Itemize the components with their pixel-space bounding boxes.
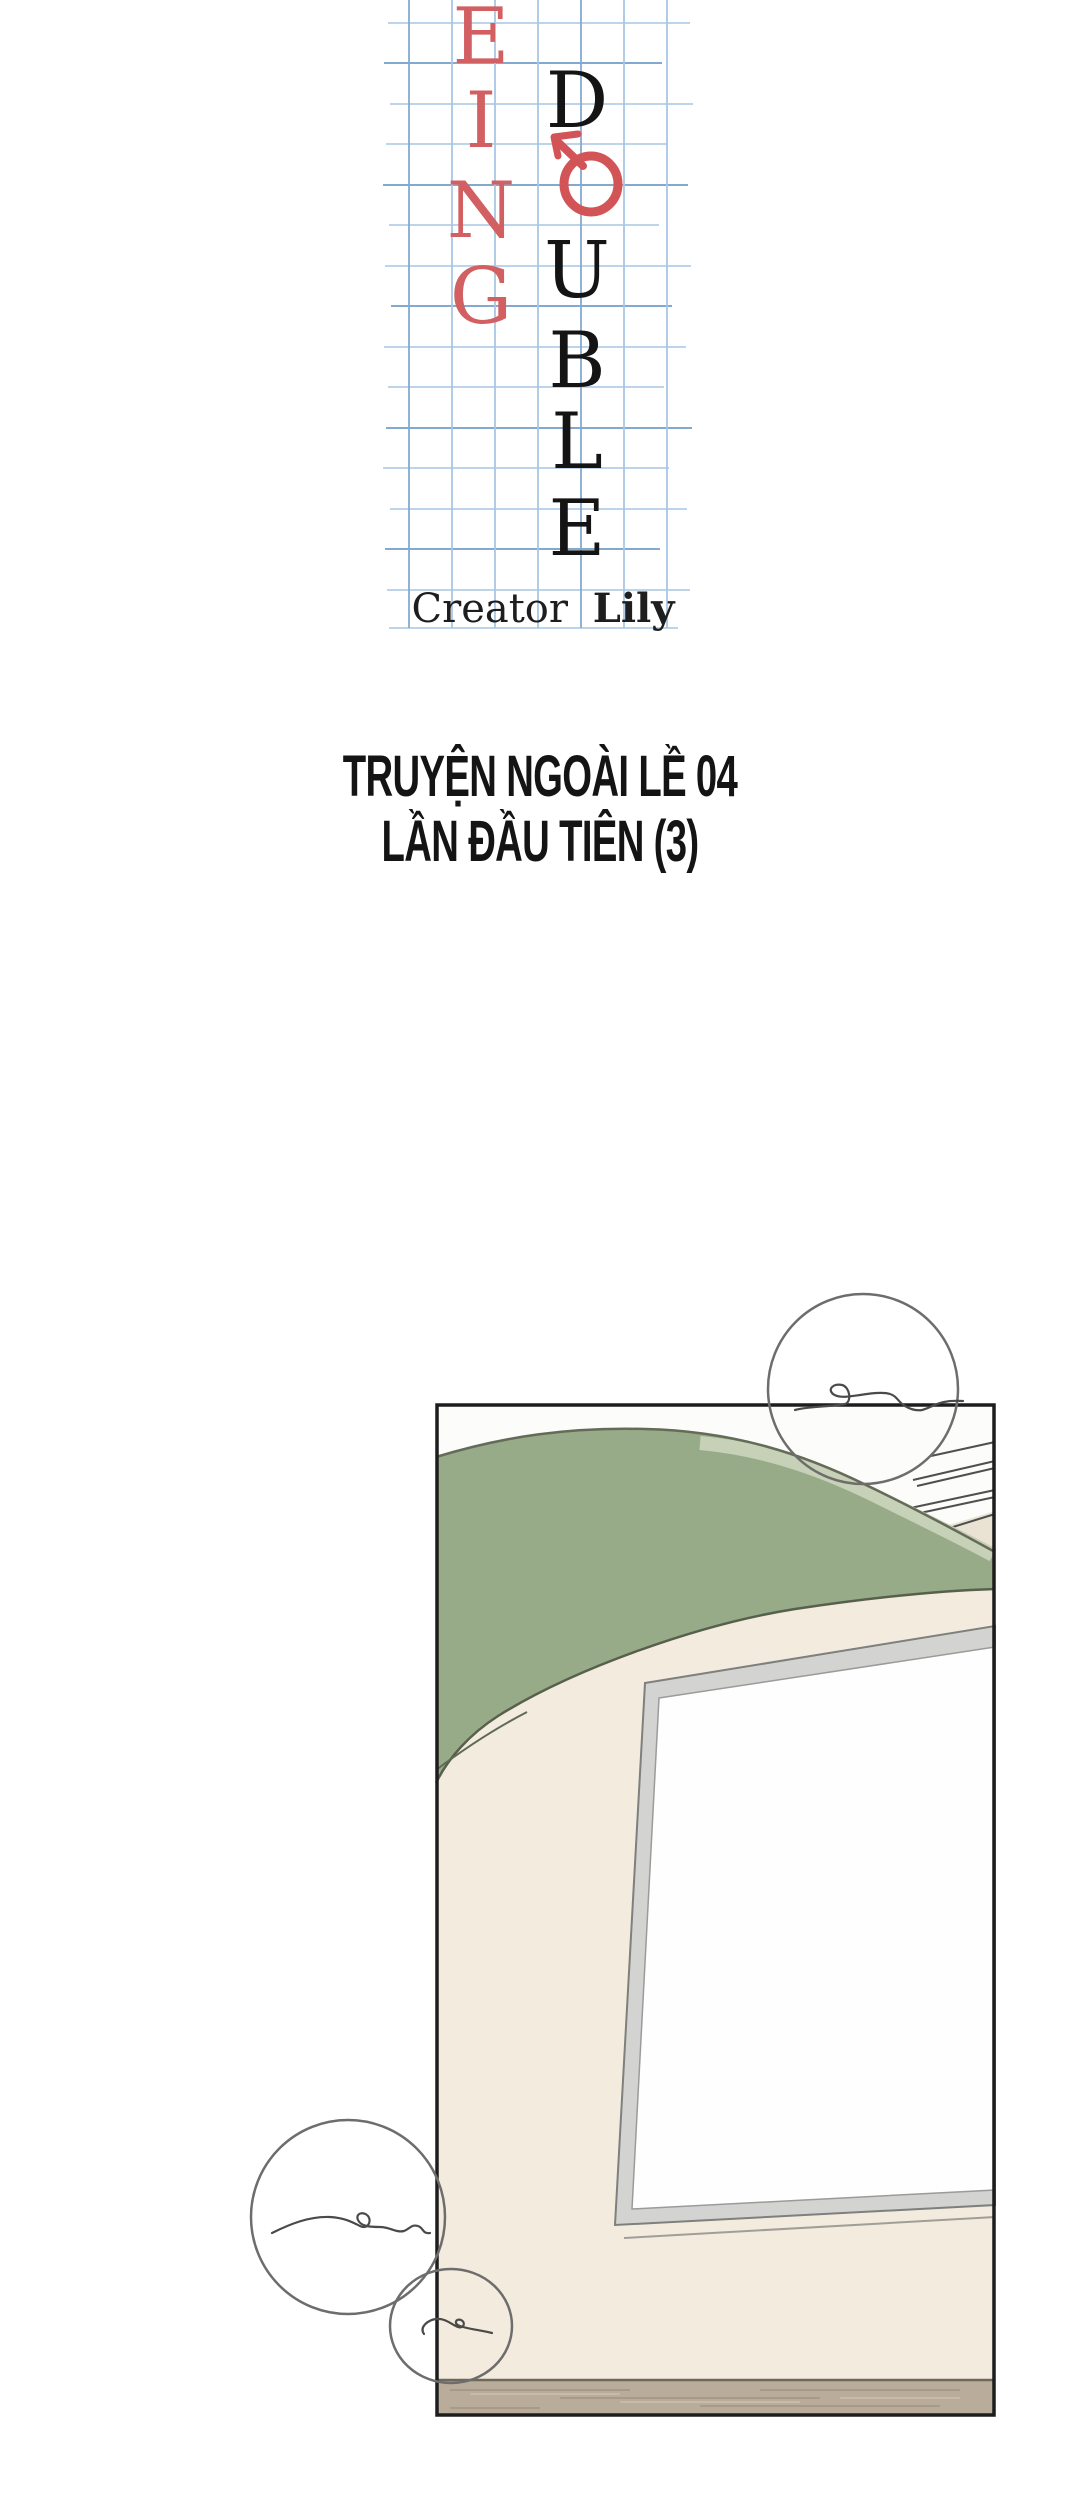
scribble-bottom-large (272, 2213, 430, 2233)
wood-floor (437, 2380, 995, 2414)
whiteboard-surface (632, 1647, 995, 2209)
comic-page: E I N G D U B L E Creator Lily TRUYỆN NG… (0, 0, 1080, 2500)
whiteboard (615, 1626, 995, 2238)
comic-panel (0, 0, 1080, 2500)
bubble-doodle-bottom-large (251, 2120, 445, 2314)
